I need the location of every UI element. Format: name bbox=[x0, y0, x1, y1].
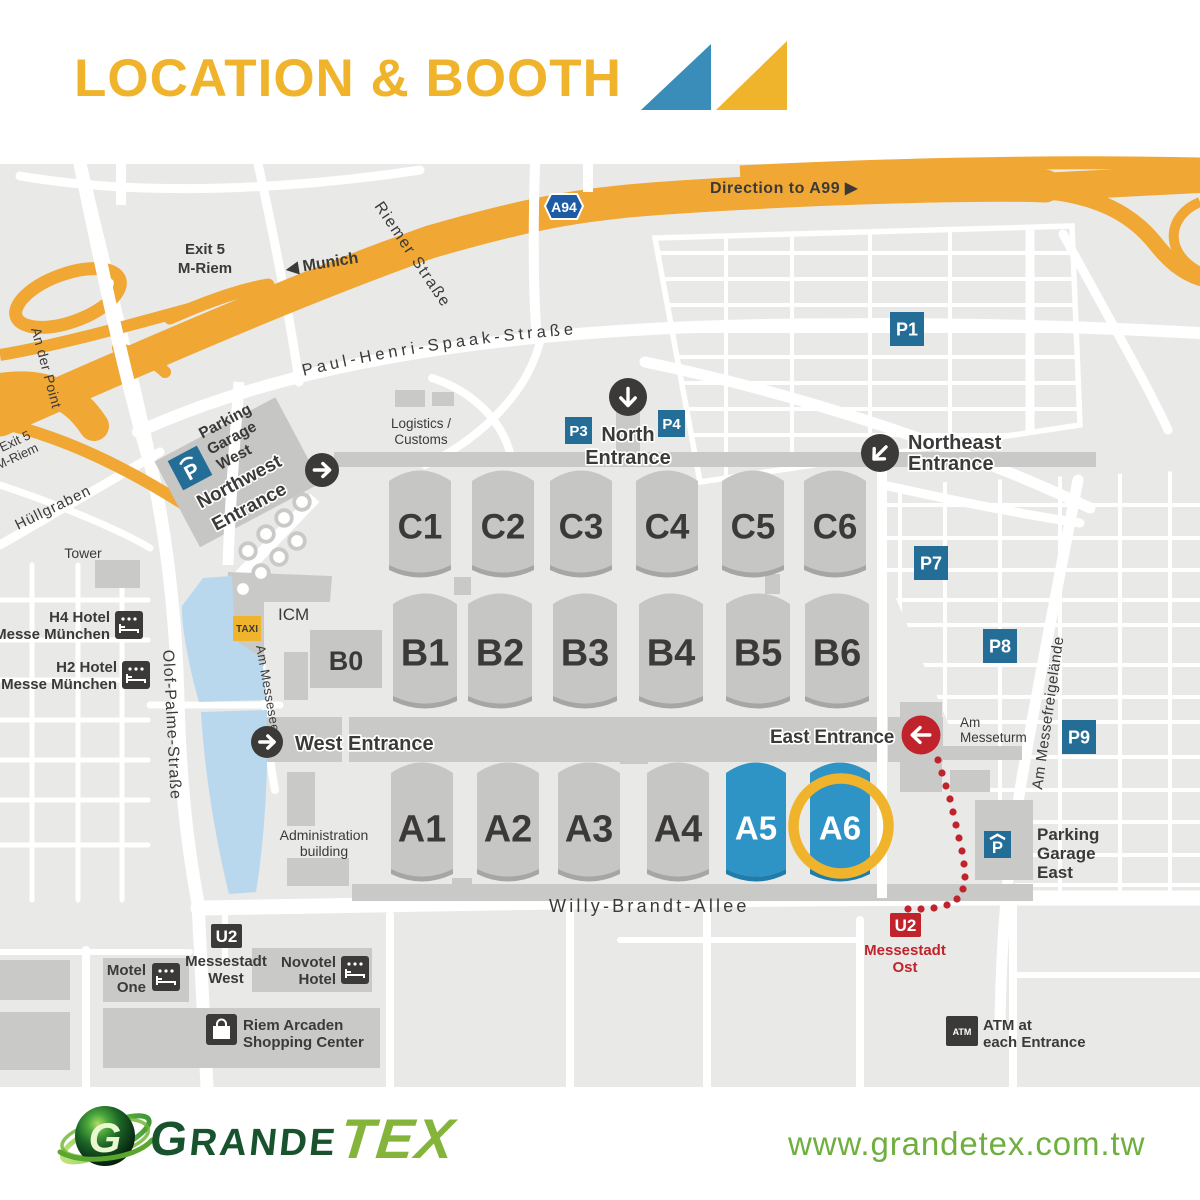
svg-text:each Entrance: each Entrance bbox=[983, 1034, 1086, 1051]
svg-text:Logistics /: Logistics / bbox=[391, 416, 451, 431]
svg-text:ATM at: ATM at bbox=[983, 1017, 1032, 1034]
svg-text:Customs: Customs bbox=[394, 432, 448, 447]
svg-text:B0: B0 bbox=[329, 646, 364, 676]
svg-text:C5: C5 bbox=[731, 508, 776, 547]
svg-text:Shopping Center: Shopping Center bbox=[243, 1034, 364, 1051]
svg-text:P4: P4 bbox=[662, 416, 681, 433]
svg-text:ICM: ICM bbox=[278, 605, 309, 624]
svg-text:G: G bbox=[89, 1114, 122, 1161]
svg-text:C3: C3 bbox=[559, 508, 604, 547]
svg-text:Riem Arcaden: Riem Arcaden bbox=[243, 1017, 343, 1034]
svg-text:West: West bbox=[208, 970, 244, 987]
svg-text:A6: A6 bbox=[819, 810, 861, 847]
svg-text:Exit 5: Exit 5 bbox=[185, 241, 225, 258]
svg-text:A4: A4 bbox=[654, 809, 703, 851]
svg-text:U2: U2 bbox=[895, 916, 917, 935]
svg-text:U2: U2 bbox=[216, 927, 238, 946]
svg-text:P9: P9 bbox=[1068, 727, 1090, 747]
svg-text:P3: P3 bbox=[569, 423, 587, 440]
svg-text:B2: B2 bbox=[476, 633, 525, 675]
svg-text:P: P bbox=[992, 838, 1003, 857]
svg-text:B1: B1 bbox=[401, 633, 450, 675]
svg-text:C4: C4 bbox=[645, 508, 690, 547]
svg-text:One: One bbox=[117, 979, 146, 996]
svg-text:A1: A1 bbox=[398, 809, 447, 851]
svg-text:North: North bbox=[601, 424, 654, 446]
svg-text:Messe München: Messe München bbox=[0, 626, 110, 643]
svg-text:Direction to A99 ▶: Direction to A99 ▶ bbox=[710, 180, 858, 197]
svg-text:B4: B4 bbox=[647, 633, 696, 675]
svg-text:TEX: TEX bbox=[337, 1107, 460, 1170]
svg-text:Am: Am bbox=[960, 715, 980, 730]
svg-text:C1: C1 bbox=[398, 508, 443, 547]
svg-text:Motel: Motel bbox=[107, 962, 146, 979]
svg-text:Messe München: Messe München bbox=[1, 676, 117, 693]
svg-text:East Entrance: East Entrance bbox=[770, 727, 894, 748]
svg-text:East: East bbox=[1037, 863, 1073, 882]
svg-text:A2: A2 bbox=[484, 809, 533, 851]
svg-text:M-Riem: M-Riem bbox=[178, 260, 232, 277]
svg-text:B6: B6 bbox=[813, 633, 862, 675]
svg-text:B3: B3 bbox=[561, 633, 610, 675]
svg-text:LOCATION & BOOTH: LOCATION & BOOTH bbox=[74, 49, 622, 108]
svg-text:Messestadt: Messestadt bbox=[864, 942, 946, 959]
svg-text:Parking: Parking bbox=[1037, 825, 1099, 844]
svg-text:www.grandetex.com.tw: www.grandetex.com.tw bbox=[787, 1125, 1145, 1162]
svg-text:ATM: ATM bbox=[953, 1027, 972, 1037]
svg-text:Hotel: Hotel bbox=[299, 971, 337, 988]
svg-text:A5: A5 bbox=[735, 810, 777, 847]
svg-text:B5: B5 bbox=[734, 633, 783, 675]
svg-text:West Entrance: West Entrance bbox=[295, 733, 434, 755]
svg-text:building: building bbox=[300, 843, 348, 859]
svg-text:Entrance: Entrance bbox=[908, 453, 994, 475]
svg-text:Novotel: Novotel bbox=[281, 954, 336, 971]
svg-text:A94: A94 bbox=[551, 199, 577, 215]
svg-text:Messeturm: Messeturm bbox=[960, 730, 1027, 745]
svg-text:Messestadt: Messestadt bbox=[185, 953, 267, 970]
svg-text:P1: P1 bbox=[896, 319, 918, 339]
svg-text:C6: C6 bbox=[813, 508, 858, 547]
svg-text:Tower: Tower bbox=[64, 545, 102, 561]
svg-text:H2 Hotel: H2 Hotel bbox=[56, 659, 117, 676]
svg-text:A3: A3 bbox=[565, 809, 614, 851]
svg-text:H4 Hotel: H4 Hotel bbox=[49, 609, 110, 626]
svg-text:TAXI: TAXI bbox=[236, 624, 258, 635]
svg-text:C2: C2 bbox=[481, 508, 526, 547]
svg-text:Willy-Brandt-Allee: Willy-Brandt-Allee bbox=[549, 896, 750, 916]
svg-text:Ost: Ost bbox=[892, 959, 917, 976]
svg-text:Northeast: Northeast bbox=[908, 432, 1002, 454]
svg-text:P8: P8 bbox=[989, 636, 1011, 656]
svg-text:P7: P7 bbox=[920, 553, 942, 573]
svg-text:Garage: Garage bbox=[1037, 844, 1096, 863]
svg-text:Entrance: Entrance bbox=[585, 447, 671, 469]
svg-text:Administration: Administration bbox=[280, 827, 369, 843]
